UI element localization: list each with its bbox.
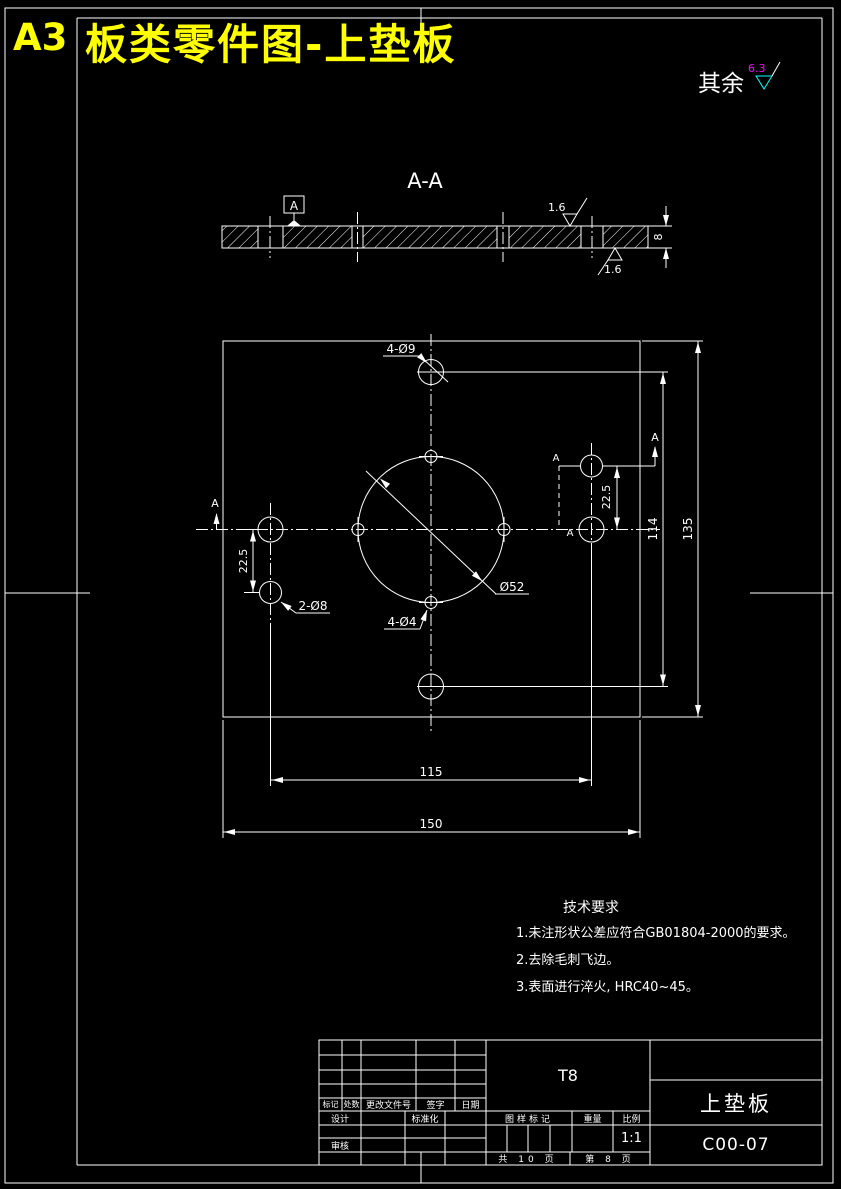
svg-text:4-Ø9: 4-Ø9 (386, 342, 415, 356)
section-title: A-A (407, 169, 443, 193)
tb-label-stage: 图样标记 (486, 1111, 572, 1125)
tb-label-mark: 标记 (319, 1098, 342, 1111)
dim-thickness: 8 (648, 206, 672, 268)
svg-text:22.5: 22.5 (600, 485, 613, 510)
svg-text:A: A (651, 431, 659, 444)
tb-label-sign: 签字 (416, 1098, 455, 1111)
dim-114: 114 (646, 372, 666, 687)
svg-text:A: A (567, 528, 574, 539)
sheet-size-label: A3 (13, 16, 67, 59)
surface-roughness-icon-top: 1.6 (548, 198, 587, 226)
tb-label-change: 更改文件号 (361, 1098, 416, 1111)
svg-text:4-Ø4: 4-Ø4 (387, 615, 416, 629)
tech-requirement-item: 2.去除毛刺飞边。 (516, 947, 796, 974)
dim-thickness-text: 8 (652, 234, 665, 241)
datum-symbol: A (284, 196, 304, 226)
svg-text:2-Ø8: 2-Ø8 (298, 599, 327, 613)
svg-text:Ø52: Ø52 (500, 580, 525, 594)
tech-requirements-list: 1.未注形状公差应符合GB01804-2000的要求。 2.去除毛刺飞边。 3.… (516, 920, 796, 1001)
svg-text:114: 114 (646, 518, 660, 541)
tb-page-no: 第 8 页 (570, 1152, 650, 1165)
surface-roughness-icon-bottom: 1.6 (598, 248, 622, 276)
svg-text:A: A (553, 453, 560, 464)
surface-finish-icon (750, 58, 786, 94)
dim-150: 150 (223, 720, 640, 838)
surface-default-note: 其余 (698, 64, 744, 98)
hole-label-2d8: 2-Ø8 (279, 599, 330, 613)
tb-label-scale: 比例 (613, 1111, 650, 1125)
svg-text:115: 115 (420, 765, 443, 779)
tb-label-weight: 重量 (572, 1111, 613, 1125)
section-view: A-A A (222, 169, 672, 276)
tech-requirements-title: 技术要求 (563, 897, 619, 917)
tb-total-pages: 共 10 页 (486, 1152, 570, 1165)
tb-drawing-no: C00-07 (650, 1125, 822, 1165)
roughness-value-top: 1.6 (548, 201, 566, 214)
dim-115: 115 (271, 765, 591, 783)
tb-label-design: 设计 (319, 1111, 361, 1125)
section-cutting-plane: A A A A (211, 431, 659, 539)
page-title: 板类零件图-上垫板 (85, 11, 456, 72)
tb-label-standard: 标准化 (405, 1111, 445, 1125)
svg-text:A: A (211, 497, 219, 510)
tb-label-review: 审核 (319, 1138, 361, 1152)
dim-22-5-right: 22.5 (600, 466, 622, 530)
hole-label-4d4: 4-Ø4 (384, 609, 430, 629)
dim-d52: Ø52 (366, 471, 529, 594)
tech-requirement-item: 3.表面进行淬火, HRC40~45。 (516, 974, 796, 1001)
tech-requirement-item: 1.未注形状公差应符合GB01804-2000的要求。 (516, 920, 796, 947)
svg-text:150: 150 (420, 817, 443, 831)
tb-label-date: 日期 (455, 1098, 486, 1111)
surface-note-label: 其余 (698, 71, 744, 97)
roughness-value-bottom: 1.6 (604, 263, 622, 276)
tb-material: T8 (486, 1040, 650, 1111)
datum-letter: A (290, 199, 299, 213)
cad-linework: A-A A (0, 0, 841, 1189)
tb-label-count: 处数 (342, 1098, 361, 1111)
tb-part-name: 上垫板 (650, 1080, 822, 1125)
svg-text:135: 135 (681, 518, 695, 541)
dim-22-5-left: 22.5 (237, 530, 260, 593)
svg-text:22.5: 22.5 (237, 549, 250, 574)
tb-scale-value: 1:1 (613, 1125, 650, 1152)
drawing-sheet: A-A A (0, 0, 841, 1189)
plan-view: 114 135 22.5 (196, 334, 703, 838)
